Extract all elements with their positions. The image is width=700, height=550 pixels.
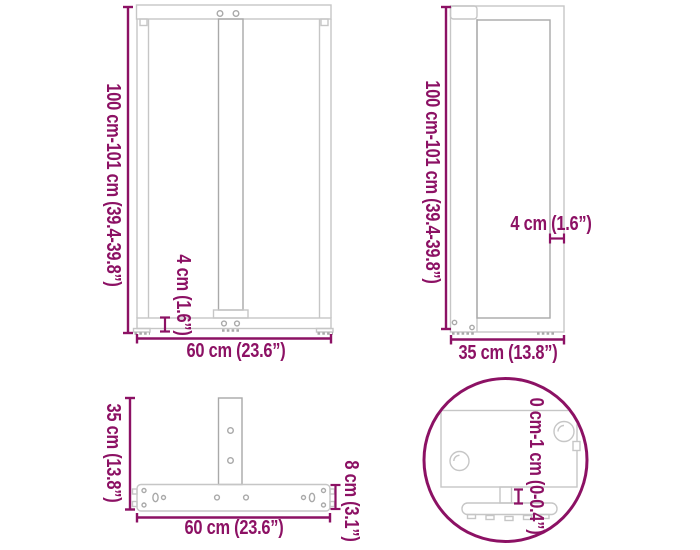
front-view-dimensions bbox=[123, 7, 331, 344]
side-view-dimensions bbox=[441, 7, 564, 345]
base-top-view-drawing bbox=[133, 398, 335, 511]
base-plate-hole bbox=[228, 428, 234, 434]
front-bar-hole bbox=[235, 321, 240, 326]
front-height-label: 100 cm-101 cm (39.4-39.8”) bbox=[103, 83, 123, 286]
base-hole bbox=[302, 496, 306, 500]
side-inner-frame bbox=[477, 20, 550, 318]
base-hole bbox=[162, 496, 166, 500]
side-post-cap bbox=[451, 6, 478, 19]
side-depth-label: 35 cm (13.8”) bbox=[459, 343, 558, 363]
dimension-diagram: 100 cm-101 cm (39.4-39.8”) 60 cm (23.6”)… bbox=[0, 0, 700, 550]
base-bar-width-label: 8 cm (3.1”) bbox=[341, 460, 361, 541]
front-plate-hole bbox=[233, 11, 239, 17]
base-screw bbox=[142, 489, 146, 493]
side-height-label: 100 cm-101 cm (39.4-39.8”) bbox=[422, 80, 442, 283]
base-screw bbox=[322, 489, 326, 493]
foot-adjust-label: 0 cm-1 cm (0-0.4”) bbox=[526, 398, 546, 535]
base-screw bbox=[142, 503, 146, 507]
base-hole bbox=[215, 495, 220, 500]
foot-edge-notch bbox=[573, 442, 580, 451]
front-left-rail-tab bbox=[140, 19, 147, 26]
side-view-drawing bbox=[451, 6, 565, 334]
base-slot-hole bbox=[309, 493, 314, 501]
front-width-label: 60 cm (23.6”) bbox=[187, 341, 286, 361]
front-right-rail-tab bbox=[321, 19, 328, 26]
front-bar-hole bbox=[222, 321, 227, 326]
base-screw bbox=[322, 503, 326, 507]
foot-detail bbox=[424, 379, 587, 542]
side-outline bbox=[451, 6, 565, 332]
base-hole bbox=[244, 495, 249, 500]
base-right-tab bbox=[330, 489, 335, 494]
base-depth-label: 35 cm (13.8”) bbox=[103, 404, 123, 503]
base-left-tab bbox=[133, 489, 138, 494]
base-slot-hole bbox=[153, 493, 158, 501]
front-left-foot bbox=[134, 329, 151, 333]
base-width-label: 60 cm (23.6”) bbox=[185, 518, 284, 538]
front-center-post bbox=[219, 19, 244, 310]
side-screw bbox=[452, 320, 456, 324]
side-thickness-label: 4 cm (1.6”) bbox=[510, 214, 591, 234]
base-right-tab bbox=[330, 502, 335, 507]
front-view-drawing bbox=[134, 5, 334, 334]
base-plate-hole bbox=[228, 458, 234, 464]
base-left-tab bbox=[133, 502, 138, 507]
side-screw bbox=[470, 325, 474, 329]
front-thickness-label: 4 cm (1.6”) bbox=[173, 254, 193, 335]
front-plate-hole bbox=[217, 11, 223, 17]
front-right-foot bbox=[317, 329, 334, 333]
base-post-plate bbox=[219, 398, 243, 485]
front-post-flange bbox=[214, 310, 249, 318]
